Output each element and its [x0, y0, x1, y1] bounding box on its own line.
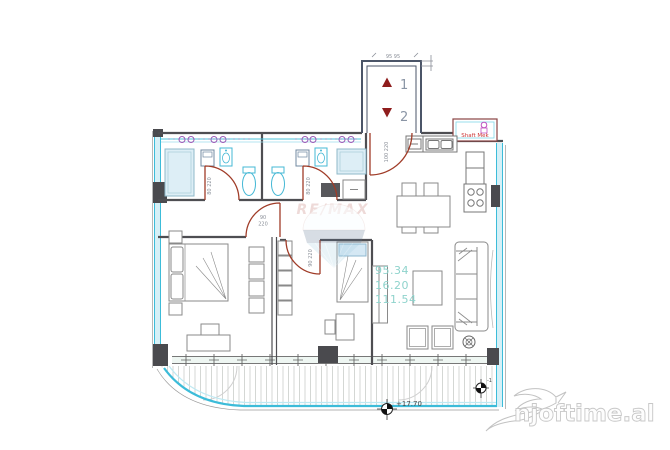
fridge-icon [466, 152, 484, 168]
door-dim-bedroom1-w: 90 [260, 215, 266, 221]
balcony [157, 366, 499, 410]
door-dim-entry: 100 220 [384, 142, 390, 163]
floor-up-number: 1 [400, 78, 408, 93]
armchair-icon [407, 326, 428, 349]
chair-icon [325, 320, 335, 334]
right-window-wall [496, 143, 503, 407]
door-dim-bath1: 80 220 [207, 177, 213, 195]
armchair-icon [432, 326, 453, 349]
door-dim-bedroom1-h: 220 [258, 222, 268, 228]
area-balcony: 16.20 [375, 279, 409, 292]
sofa [455, 242, 488, 331]
floor-plan-image: 95 95 1 2 [0, 0, 670, 450]
elevation-value: +17.70 [396, 400, 422, 408]
shower-icon [165, 149, 194, 196]
door-dim-bedroom2: 90 220 [308, 249, 314, 267]
shower-icon [337, 149, 366, 174]
wardrobe [249, 247, 264, 313]
pillow-icon [171, 274, 183, 299]
dining-table [397, 196, 450, 227]
njoftime-logo: njoftime.al [486, 389, 655, 431]
nightstand-icon [169, 231, 182, 243]
chair-icon [201, 324, 219, 336]
stair-top-dimension: 95 95 [386, 54, 400, 60]
shaft-label: Shaft Mek [461, 133, 489, 139]
column-icon [153, 344, 168, 366]
column-icon [487, 348, 499, 365]
pillow-icon [171, 247, 183, 272]
cabinet-icon [466, 168, 484, 184]
wardrobe [278, 241, 292, 315]
stove-icon [464, 184, 486, 212]
column-icon [491, 185, 500, 207]
column-icon [318, 346, 338, 363]
coffee-table [413, 271, 442, 305]
brand-text: njoftime.al [514, 401, 655, 427]
stairwell: 95 95 1 2 [362, 53, 433, 133]
corner-mark: -1 [487, 378, 492, 384]
area-values: 95.34 16.20 111.54 [375, 264, 417, 306]
curtain-line [491, 250, 494, 328]
dimension-ticks [421, 55, 433, 71]
floor-plan-svg: 95 95 1 2 [0, 0, 670, 450]
desk [187, 335, 230, 351]
arrow-down-icon [382, 108, 392, 118]
dining-area [397, 183, 450, 233]
nightstand-icon [169, 303, 182, 315]
chair-icon [402, 183, 416, 196]
left-window-wall [154, 133, 161, 366]
balloon-band-icon [303, 230, 365, 243]
bathroom-2 [272, 148, 367, 199]
door-dim-bath2: 80 220 [306, 177, 312, 195]
bedroom-1 [169, 231, 264, 351]
area-net: 95.34 [375, 264, 409, 277]
desk [336, 314, 354, 340]
area-total: 111.54 [375, 293, 417, 306]
arrow-up-icon [382, 78, 392, 88]
floor-down-number: 2 [400, 110, 408, 125]
chair-icon [424, 183, 438, 196]
